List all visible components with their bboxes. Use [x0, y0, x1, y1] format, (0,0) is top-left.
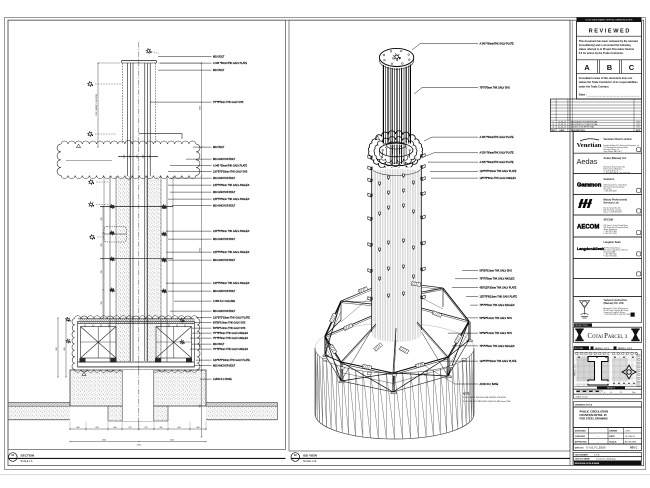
svg-text:5.4 for action by the Tra: 5.4 for action by the Trade Contractor. — [579, 52, 624, 55]
svg-text:B: B — [607, 63, 613, 72]
svg-text:FOUNTAIN DETAIL 25: FOUNTAIN DETAIL 25 — [580, 413, 608, 417]
svg-text:125*75*8mm THK GALV ANGLES: 125*75*8mm THK GALV ANGLES — [213, 282, 250, 285]
svg-text:S-YU5_FC_55000: S-YU5_FC_55000 — [586, 446, 606, 449]
svg-text:50m: 50m — [632, 392, 636, 394]
svg-text:RE-ISSUED FOR APPROVAL: RE-ISSUED FOR APPROVAL — [571, 123, 599, 126]
svg-text:75*75*5mm THK GALV SHS: 75*75*5mm THK GALV SHS — [213, 101, 244, 104]
svg-text:A 345 *50mmTHK GALV PLATE: A 345 *50mmTHK GALV PLATE — [213, 165, 247, 168]
svg-text:under the Trade Contract.: under the Trade Contract. — [579, 85, 610, 88]
svg-text:M10 BOLT: M10 BOLT — [213, 69, 225, 72]
svg-text:Gammon: Gammon — [577, 183, 602, 189]
svg-text:Langdon Seah: Langdon Seah — [604, 241, 622, 244]
svg-text:35/F Wu Chung House,: 35/F Wu Chung House, — [604, 248, 621, 250]
svg-text:A 345 *50mmTHK GALV PLATE: A 345 *50mmTHK GALV PLATE — [480, 161, 514, 164]
svg-text:125*75*8mm THK GALV ANGLES: 125*75*8mm THK GALV ANGLES — [480, 177, 517, 180]
svg-text:Hong Kong: Hong Kong — [604, 189, 612, 191]
svg-text:1. ALL BOLT SHOULD BE FIXING O: 1. ALL BOLT SHOULD BE FIXING ON SITE. — [463, 396, 507, 399]
svg-text:2520: 2520 — [170, 440, 174, 442]
svg-text:Consultant review of this: Consultant review of this document does … — [579, 77, 633, 80]
svg-text:COTAI PARCEL 3: COTAI PARCEL 3 — [588, 333, 628, 340]
svg-text:21-06-15: 21-06-15 — [558, 121, 567, 123]
svg-text:A 500 *50mmTHK GALV PLATE: A 500 *50mmTHK GALV PLATE — [480, 152, 514, 155]
svg-text:14-JUN-15: 14-JUN-15 — [625, 436, 636, 438]
svg-text:APPROVED: APPROVED — [575, 441, 587, 444]
svg-text:A 350 R.C COLUMN: A 350 R.C COLUMN — [213, 300, 235, 303]
svg-text:50*50*5.0mm THK GALV SHS: 50*50*5.0mm THK GALV SHS — [213, 327, 246, 330]
svg-text:M10 BOLT: M10 BOLT — [213, 56, 225, 59]
svg-text:300: 300 — [196, 427, 199, 429]
svg-text:AECOM: AECOM — [577, 225, 599, 231]
svg-text:300: 300 — [101, 243, 103, 246]
svg-text:50*50*5.0mm THK GALV SHS: 50*50*5.0mm THK GALV SHS — [480, 317, 513, 320]
svg-text:75*75*5mm THK GALV ANGLES: 75*75*5mm THK GALV ANGLES — [213, 332, 248, 335]
svg-text:(Macau) CO. LTD.: (Macau) CO. LTD. — [604, 302, 625, 305]
svg-text:125*75*8mm THK GALV ANGLES: 125*75*8mm THK GALV ANGLES — [213, 184, 250, 187]
svg-text:125*75*8mm THK GALV ANGLES: 125*75*8mm THK GALV ANGLES — [213, 198, 250, 201]
svg-text:75*75*5mm THK GALV ANGLES: 75*75*5mm THK GALV ANGLES — [480, 278, 515, 281]
svg-text:Aedas: Aedas — [577, 157, 598, 166]
svg-text:AS SHOWN: AS SHOWN — [625, 441, 637, 444]
svg-text:M10 ANCHOR BOLT: M10 ANCHOR BOLT — [213, 259, 236, 262]
svg-text:75*75*5mm THK GALV SHS: 75*75*5mm THK GALV SHS — [480, 87, 511, 90]
svg-text:120*575*10mm THK GALV PLATE: 120*575*10mm THK GALV PLATE — [480, 170, 517, 173]
svg-text:14-06-15: 14-06-15 — [558, 124, 567, 126]
svg-text:F +852 2317 7609: F +852 2317 7609 — [604, 233, 617, 235]
svg-text:120*575*10mm THK GALV PLATE: 120*575*10mm THK GALV PLATE — [480, 360, 517, 363]
svg-text:28/F, Devon House, Taikoo Plac: 28/F, Devon House, Taikoo Place — [604, 185, 628, 187]
svg-text:DESIGNED: DESIGNED — [575, 431, 586, 433]
svg-text:M10 ANCHOR BOLT: M10 ANCHOR BOLT — [213, 290, 236, 293]
svg-text:T +852 2317 7000: T +852 2317 7000 — [604, 231, 617, 233]
svg-text:S-YU5_FC_55000.dwg: S-YU5_FC_55000.dwg — [596, 459, 615, 461]
svg-text:A 345 *50mmTHK GALV PLATE: A 345 *50mmTHK GALV PLATE — [213, 62, 247, 65]
svg-text:2. ALL FILLET WELDED SHOULD BE: 2. ALL FILLET WELDED SHOULD BE 5mm THK. — [463, 400, 511, 403]
svg-text:PROJECT TITLE: PROJECT TITLE — [575, 325, 589, 327]
svg-text:Macau T +853 2837 5621: Macau T +853 2837 5621 — [604, 212, 622, 214]
svg-text:M10 ANCHOR BOLT: M10 ANCHOR BOLT — [213, 177, 236, 180]
svg-text:900: 900 — [56, 347, 58, 350]
svg-text:300: 300 — [76, 427, 79, 429]
svg-text:50*50*5.0mm THK GALV SHS: 50*50*5.0mm THK GALV SHS — [213, 322, 246, 325]
svg-text:M10 ANCHOR BOLT: M10 ANCHOR BOLT — [213, 191, 236, 194]
svg-text:Services Ltd.: Services Ltd. — [604, 202, 620, 205]
svg-text:AECOM: AECOM — [604, 219, 613, 222]
svg-text:SCALE 1:10: SCALE 1:10 — [303, 460, 317, 463]
svg-text:REV: REV — [551, 130, 556, 132]
svg-text:M10 ANCHOR BOLT: M10 ANCHOR BOLT — [213, 310, 236, 313]
svg-text:T +852 2830 3500: T +852 2830 3500 — [604, 254, 617, 256]
svg-text:PARCEL 1, LOT 3: PARCEL 1, LOT 3 — [618, 347, 632, 350]
svg-text:75*75*5mm THK GALV ANGLES: 75*75*5mm THK GALV ANGLES — [480, 345, 515, 348]
svg-text:T +852 2516 8823: T +852 2516 8823 — [604, 191, 617, 193]
svg-text:Consultant(s) and is accord: Consultant(s) and is accorded the follow… — [579, 44, 631, 47]
svg-text:215: 215 — [128, 427, 131, 429]
svg-text:M10 BOLT: M10 BOLT — [213, 146, 225, 149]
svg-text:C: C — [629, 63, 635, 72]
svg-text:10: 10 — [610, 392, 612, 394]
svg-text:120*575*10mm THK GALV PLATE: 120*575*10mm THK GALV PLATE — [213, 317, 250, 320]
svg-text:444: 444 — [95, 427, 98, 429]
svg-text:Aedas (Macau) Ltd.: Aedas (Macau) Ltd. — [604, 157, 627, 160]
svg-text:A 345 *50mmTHK GALV PLATE: A 345 *50mmTHK GALV PLATE — [480, 43, 514, 46]
svg-text:SCALE: SCALE — [609, 441, 617, 444]
svg-text:A1500 R.C BASE: A1500 R.C BASE — [480, 383, 499, 386]
svg-text:300: 300 — [113, 427, 116, 429]
svg-text:125*75*8mm THK GALV ANGLES: 125*75*8mm THK GALV ANGLES — [213, 251, 250, 254]
svg-text:Venetian Orient Limited: Venetian Orient Limited — [604, 138, 632, 141]
svg-text:5040: 5040 — [137, 444, 141, 446]
svg-text:Date :: Date : — [579, 93, 587, 97]
svg-text:215: 215 — [144, 427, 147, 429]
svg-text:75*75*5mm THK GALV ANGLES: 75*75*5mm THK GALV ANGLES — [213, 337, 248, 340]
svg-text:444: 444 — [177, 427, 180, 429]
svg-text:RE-ISSUED FOR APPROVAL: RE-ISSUED FOR APPROVAL — [571, 120, 599, 123]
svg-text:M10 ANCHOR BOLT: M10 ANCHOR BOLT — [213, 238, 236, 241]
svg-text:REV C: REV C — [630, 446, 638, 449]
svg-text:75*75*5mm THK GALV ANGLES: 75*75*5mm THK GALV ANGLES — [213, 348, 248, 351]
svg-text:A1500 R.C BASE: A1500 R.C BASE — [213, 378, 232, 381]
svg-text:F +852 2576 0416: F +852 2576 0416 — [604, 256, 617, 258]
svg-text:0: 0 — [604, 392, 605, 394]
svg-text:M10 ANCHOR BOLT: M10 ANCHOR BOLT — [213, 158, 236, 161]
svg-text:DATE: DATE — [559, 129, 565, 132]
svg-text:S-YU5: S-YU5 — [594, 455, 600, 457]
svg-text:NOTE:: NOTE: — [463, 394, 470, 396]
svg-text:REVISIONS ON FILE NAME: REVISIONS ON FILE NAME — [575, 462, 600, 465]
svg-text:CAD NUMBER: CAD NUMBER — [575, 454, 589, 457]
svg-text:DRAWING TITLE: DRAWING TITLE — [575, 404, 593, 407]
svg-text:CHECKED: CHECKED — [575, 436, 586, 438]
svg-text:125*75*8mm THK GALV ANGLES: 125*75*8mm THK GALV ANGLES — [213, 230, 250, 233]
svg-text:1786 (VERIFY ON SITE): 1786 (VERIFY ON SITE) — [96, 94, 98, 116]
svg-text:FOR STEEL DRAWING: FOR STEEL DRAWING — [580, 417, 608, 421]
svg-text:SECTION: SECTION — [21, 453, 36, 457]
svg-text:PARCEL 1, LOT 2: PARCEL 1, LOT 2 — [595, 347, 609, 350]
svg-text:Venetian: Venetian — [577, 142, 602, 149]
svg-text:M10 BOLT: M10 BOLT — [213, 343, 225, 346]
svg-text:This document has been rev: This document has been reviewed by the r… — [579, 40, 638, 43]
svg-text:120*575*10mm THK GALV SHS: 120*575*10mm THK GALV SHS — [213, 171, 248, 174]
svg-text:300: 300 — [101, 217, 103, 220]
svg-text:ISO VIEW: ISO VIEW — [303, 453, 317, 457]
svg-text:DRAWN: DRAWN — [609, 430, 617, 433]
svg-text:A 345 *50mmTHK GALV PLATE: A 345 *50mmTHK GALV PLATE — [480, 136, 514, 139]
svg-text:50*50*5.0mm THK GALV SHS: 50*50*5.0mm THK GALV SHS — [480, 270, 513, 273]
svg-text:Langdon&Seah: Langdon&Seah — [577, 247, 605, 251]
svg-text:Gammon: Gammon — [604, 178, 615, 181]
svg-text:25: 25 — [620, 392, 622, 394]
svg-text:300: 300 — [101, 301, 103, 304]
svg-text:CAD FILE NAME: CAD FILE NAME — [575, 458, 591, 461]
svg-text:300: 300 — [159, 427, 162, 429]
svg-text:R E V I E W E D: R E V I E W E D — [589, 28, 630, 34]
svg-text:relieve the Trade Contracto: relieve the Trade Contractor of its resp… — [579, 81, 639, 84]
svg-text:SCALE 1:1000: SCALE 1:1000 — [576, 396, 588, 399]
svg-text:DATE: DATE — [609, 435, 615, 438]
svg-text:SCALE 1:5: SCALE 1:5 — [21, 460, 33, 463]
svg-text:A: A — [584, 63, 590, 72]
svg-text:LLHO: LLHO — [625, 431, 631, 433]
svg-text:PUBLIC CIRCULATION: PUBLIC CIRCULATION — [580, 409, 609, 413]
svg-text:120*575*10mm THK GALV PLATE: 120*575*10mm THK GALV PLATE — [213, 359, 250, 362]
svg-text:DWG NO: DWG NO — [575, 447, 584, 449]
svg-text:450*225*10mm THK GALV PLATE: 450*225*10mm THK GALV PLATE — [480, 286, 517, 289]
svg-text:450: 450 — [64, 347, 66, 350]
svg-text:50*50*5.0mm THK GALV SHS: 50*50*5.0mm THK GALV SHS — [480, 332, 513, 335]
svg-text:T +853 2875 3339 F +853 2875: T +853 2875 3339 F +853 2875 3319 — [604, 314, 631, 316]
svg-text:75*75*5mm THK GALV ANGLES: 75*75*5mm THK GALV ANGLES — [480, 304, 515, 307]
svg-text:125*75*8/12mm THK GALV PLATE: 125*75*8/12mm THK GALV PLATE — [480, 296, 518, 299]
svg-text:M10 ANCHOR BOLT: M10 ANCHOR BOLT — [213, 365, 236, 368]
svg-text:2520: 2520 — [102, 440, 106, 442]
svg-text:300: 300 — [101, 270, 103, 273]
svg-text:Rua do Campo No. 202,: Rua do Campo No. 202, — [604, 208, 622, 210]
svg-text:M10 ANCHOR BOLT: M10 ANCHOR BOLT — [213, 205, 236, 208]
svg-text:status referred to in Proj: status referred to in Project Procedure … — [579, 48, 635, 51]
